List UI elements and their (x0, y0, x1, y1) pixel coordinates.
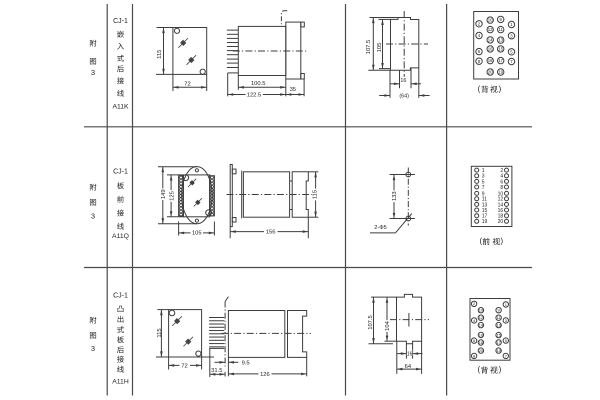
svg-text:115: 115 (157, 328, 163, 337)
svg-text:20: 20 (488, 70, 493, 75)
svg-text:15: 15 (496, 333, 500, 338)
svg-text:3: 3 (91, 212, 95, 221)
svg-text:64: 64 (405, 364, 412, 370)
svg-text:10: 10 (488, 18, 493, 23)
svg-text:105: 105 (192, 230, 202, 236)
svg-text:3: 3 (91, 344, 95, 353)
svg-text:115: 115 (157, 50, 163, 59)
svg-text:115: 115 (313, 190, 319, 199)
svg-text:A11K: A11K (112, 103, 129, 110)
svg-text:7: 7 (482, 185, 485, 191)
svg-text:CJ-1: CJ-1 (113, 18, 128, 25)
svg-text:CJ-1: CJ-1 (113, 169, 128, 176)
svg-text:): ) (499, 85, 502, 94)
svg-text:107.5: 107.5 (368, 315, 374, 330)
svg-text:35: 35 (290, 87, 296, 93)
svg-text:5: 5 (505, 338, 507, 343)
svg-text:(: ( (477, 365, 480, 374)
svg-text:16: 16 (479, 332, 483, 337)
svg-text:9.5: 9.5 (242, 361, 250, 367)
svg-text:149: 149 (161, 189, 167, 199)
svg-text:(: ( (478, 85, 481, 94)
svg-text:8: 8 (473, 353, 475, 358)
svg-text:A11H: A11H (112, 378, 129, 385)
svg-text:122.5: 122.5 (247, 93, 262, 99)
svg-text:(64): (64) (399, 94, 409, 100)
svg-text:2-Φ5: 2-Φ5 (374, 225, 387, 231)
svg-text:104: 104 (385, 320, 391, 330)
svg-text:133: 133 (392, 191, 398, 201)
svg-text:16: 16 (488, 46, 493, 51)
svg-text:9: 9 (498, 308, 500, 313)
svg-text:13: 13 (498, 38, 503, 43)
svg-text:2: 2 (473, 301, 475, 306)
svg-text:15: 15 (498, 46, 503, 51)
svg-text:105: 105 (377, 43, 383, 53)
svg-text:156: 156 (266, 229, 276, 235)
svg-text:): ) (499, 365, 502, 374)
svg-text:11: 11 (497, 315, 501, 320)
svg-text:31.5: 31.5 (211, 368, 222, 374)
svg-text:100.5: 100.5 (251, 81, 266, 87)
svg-text:16: 16 (407, 351, 413, 357)
svg-text:6: 6 (473, 338, 475, 343)
svg-text:12: 12 (488, 27, 493, 32)
svg-text:13: 13 (496, 323, 500, 328)
svg-text:): ) (500, 237, 503, 246)
svg-text:20: 20 (498, 219, 504, 225)
svg-text:7: 7 (505, 353, 507, 358)
svg-text:17: 17 (498, 58, 503, 63)
svg-text:A11Q: A11Q (112, 233, 129, 240)
svg-text:8: 8 (500, 185, 503, 191)
svg-text:3: 3 (91, 68, 95, 77)
svg-text:19: 19 (482, 219, 488, 225)
svg-text:1: 1 (505, 302, 507, 307)
svg-text:16: 16 (400, 78, 406, 84)
svg-text:11: 11 (498, 27, 503, 32)
svg-text:72: 72 (184, 81, 190, 87)
svg-text:19: 19 (498, 70, 503, 75)
svg-text:125: 125 (169, 191, 175, 201)
svg-text:CJ-1: CJ-1 (113, 293, 128, 300)
svg-text:19: 19 (496, 348, 500, 353)
svg-text:72: 72 (181, 363, 187, 369)
svg-text:18: 18 (479, 340, 483, 345)
svg-text:12: 12 (479, 315, 483, 320)
svg-text:18: 18 (488, 58, 493, 63)
svg-text:107.5: 107.5 (366, 40, 372, 55)
svg-text:3: 3 (505, 318, 507, 323)
svg-text:17: 17 (496, 340, 500, 345)
svg-text:14: 14 (488, 37, 493, 42)
svg-text:126: 126 (260, 372, 270, 378)
svg-text:(: ( (479, 237, 482, 246)
